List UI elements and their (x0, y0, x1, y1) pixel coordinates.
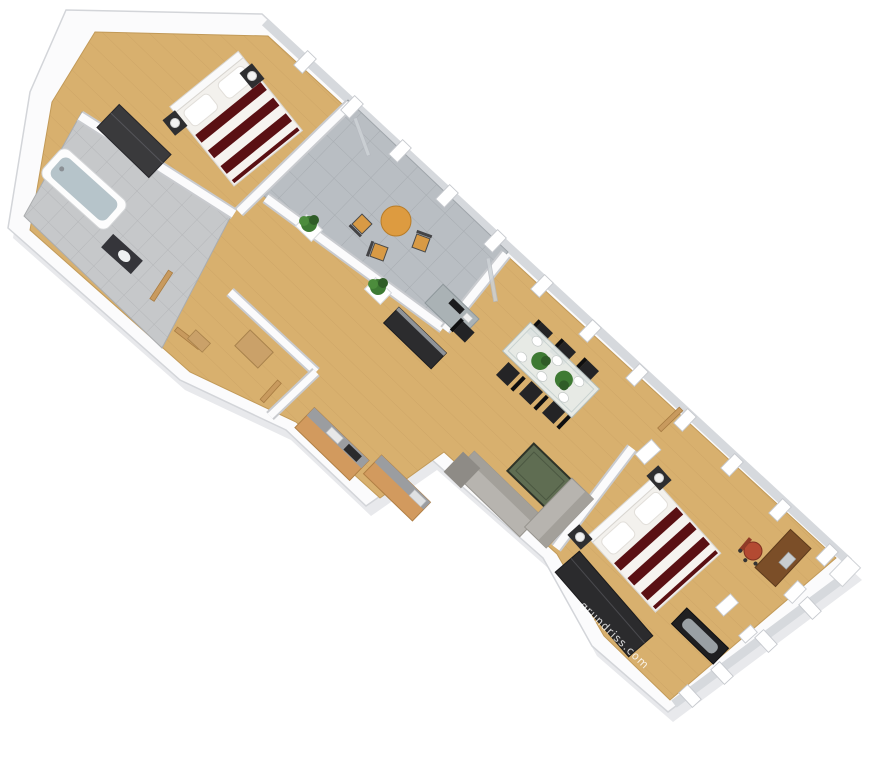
terrace-table (381, 206, 411, 236)
floorplan-render: grundriss.com (0, 0, 881, 768)
floorplan-svg: grundriss.com (0, 0, 881, 768)
